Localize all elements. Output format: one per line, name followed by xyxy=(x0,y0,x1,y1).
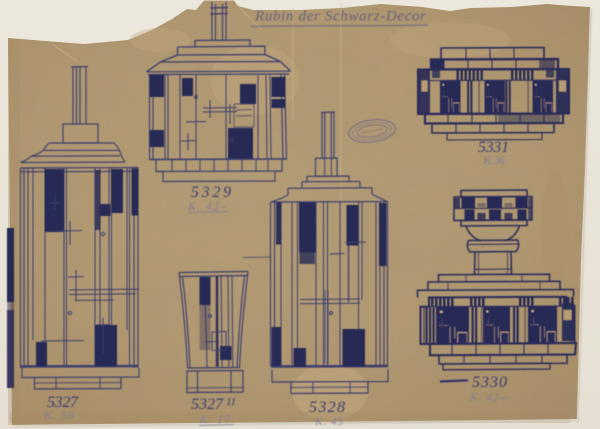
svg-text:K. 56: K. 56 xyxy=(43,410,74,422)
svg-text:K. 36: K. 36 xyxy=(482,155,505,167)
svg-text:K. 45: K. 45 xyxy=(314,416,343,428)
svg-text:K. 42–: K. 42– xyxy=(187,201,226,213)
svg-text:5331: 5331 xyxy=(478,139,509,156)
svg-text:5327: 5327 xyxy=(47,394,79,411)
svg-text:K. 17: K. 17 xyxy=(199,414,231,426)
svg-text:Rubin der Schwarz-Decor: Rubin der Schwarz-Decor xyxy=(254,9,426,25)
svg-text:K. 42—: K. 42— xyxy=(469,390,510,404)
svg-text:5330: 5330 xyxy=(472,374,507,391)
svg-text:5328: 5328 xyxy=(309,399,345,416)
